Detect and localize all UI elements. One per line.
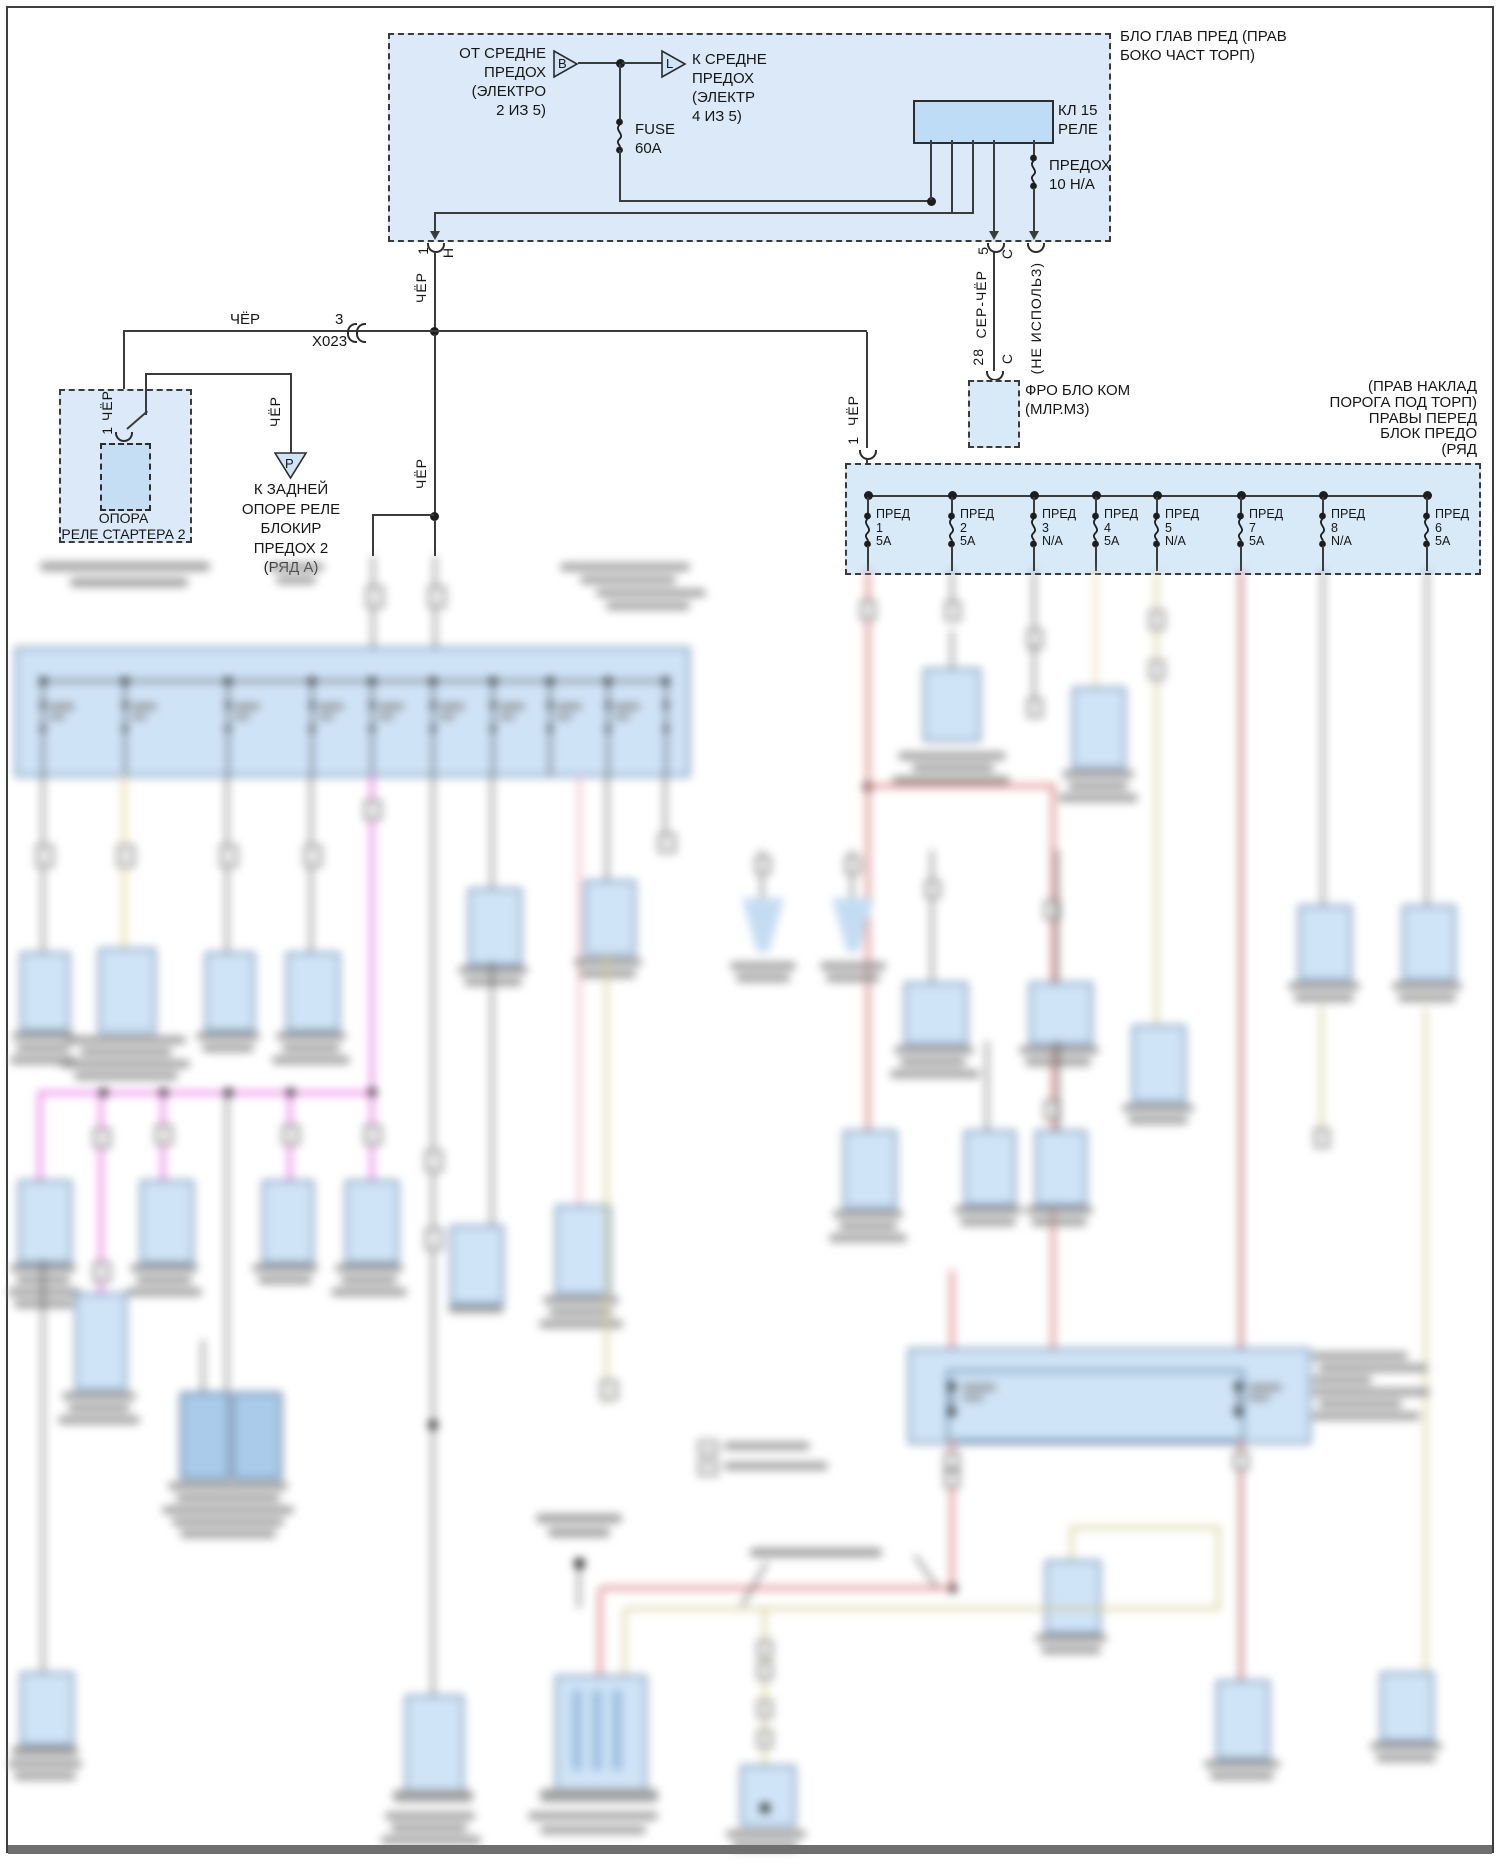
wire (372, 516, 374, 556)
wire (123, 330, 435, 332)
x023-name: X023 (312, 332, 347, 351)
wire (434, 212, 974, 214)
not-used-label: (НЕ ИСПОЛЬЗ) (1028, 262, 1044, 374)
kl15-relay-label: КЛ 15РЕЛЕ (1058, 101, 1098, 139)
wire (435, 330, 867, 332)
from-middle-fuse-label: ОТ СРЕДНЕПРЕДОХ(ЭЛЕКТРО2 ИЗ 5) (430, 44, 546, 120)
pin-number: 1 (415, 246, 431, 255)
connector-to-letter: L (666, 54, 673, 73)
right-fuse-box-title: (ПРАВ НАКЛАДПОРОГА ПОД ТОРП)ПРАВЫ ПЕРЕДБ… (1280, 379, 1477, 458)
wire-color-label: СЕР-ЧЁР (973, 270, 989, 338)
ground-pointer-letter: P (285, 454, 294, 473)
fro-block-label: ФРО БЛО КОМ(МЛР.М3) (1025, 381, 1130, 419)
wire (145, 373, 147, 415)
wire (434, 252, 436, 332)
connector-name: Н (440, 247, 456, 258)
wire-color-label: ЧЁР (845, 395, 861, 426)
connector-from-letter: B (558, 54, 567, 73)
arrow-down-icon (989, 231, 999, 240)
fuse-label: ПРЕД25А (960, 508, 994, 549)
arrow-down-icon (430, 231, 440, 240)
inline-connector-icon (356, 323, 366, 343)
fuse-label: ПРЕД65А (1435, 508, 1469, 549)
wire (622, 62, 662, 64)
wire-color-label: ЧЁР (230, 310, 260, 329)
wire (372, 514, 434, 516)
relay-pin (993, 140, 995, 233)
wire (1322, 546, 1324, 571)
wiring-diagram-page: БЛО ГЛАВ ПРЕД (ПРАВБОКО ЧАСТ ТОРП) ОТ СР… (0, 0, 1500, 1861)
fuse-label: ПРЕД15А (876, 508, 910, 549)
fuse-label: ПРЕД75А (1249, 508, 1283, 549)
pin-number: 28 (970, 348, 986, 366)
starter-label-2: РЕЛЕ СТАРТЕРА 2 (59, 525, 188, 544)
wire (434, 214, 436, 231)
wire (1033, 188, 1035, 233)
bottom-frame-bar (8, 1845, 1492, 1854)
fuse-10na-label: ПРЕДОХ10 Н/А (1049, 156, 1111, 194)
wire (1426, 546, 1428, 571)
right-fuse-box (845, 463, 1481, 575)
pin-number: 1 (845, 436, 861, 445)
wire (1095, 546, 1097, 571)
wire (993, 252, 995, 371)
connector-name: С (999, 248, 1015, 259)
starter-relay-inner-box (100, 443, 151, 511)
main-fuse-panel-title: БЛО ГЛАВ ПРЕД (ПРАВБОКО ЧАСТ ТОРП) (1120, 27, 1287, 65)
relay-pin (930, 140, 932, 200)
off-page-connector-to-icon (661, 49, 687, 84)
wire (619, 150, 621, 202)
relay-pin (951, 140, 953, 213)
wire (434, 334, 436, 518)
wire (434, 520, 436, 556)
fuse-label: ПРЕД8N/A (1331, 508, 1365, 549)
wire (578, 62, 618, 64)
arrow-down-icon (1029, 231, 1039, 240)
ground-pointer-text: К ЗАДНЕЙОПОРЕ РЕЛЕБЛОКИРПРЕДОХ 2(РЯД А) (231, 480, 351, 578)
wire (1033, 546, 1035, 571)
to-middle-fuse-label: К СРЕДНЕПРЕДОХ(ЭЛЕКТР4 ИЗ 5) (692, 50, 767, 126)
wire (867, 546, 869, 571)
pin-wire-label: 1 ЧЁР (99, 390, 115, 435)
kl15-relay-box (913, 100, 1054, 144)
wire (145, 373, 292, 375)
wire (866, 332, 868, 448)
pin-number: 5 (975, 246, 991, 255)
fro-block-box (968, 380, 1020, 448)
wire (619, 200, 933, 202)
wire (1240, 546, 1242, 571)
wire (619, 64, 621, 122)
wire-color-label: ЧЁР (267, 396, 283, 427)
page-border (6, 6, 1494, 1853)
fuse-label: ПРЕД45А (1104, 508, 1138, 549)
wire-color-label: ЧЁР (413, 458, 429, 489)
x023-pin: 3 (335, 310, 343, 329)
fuse-label: ПРЕД3N/A (1042, 508, 1076, 549)
relay-pin (972, 140, 974, 213)
fuse-60a-label: FUSE60A (635, 120, 675, 158)
wire-color-label: ЧЁР (413, 272, 429, 303)
wire (951, 546, 953, 571)
wire (290, 375, 292, 453)
connector-name: С (999, 353, 1015, 364)
wire (1156, 546, 1158, 571)
fuse-label: ПРЕД5N/A (1165, 508, 1199, 549)
